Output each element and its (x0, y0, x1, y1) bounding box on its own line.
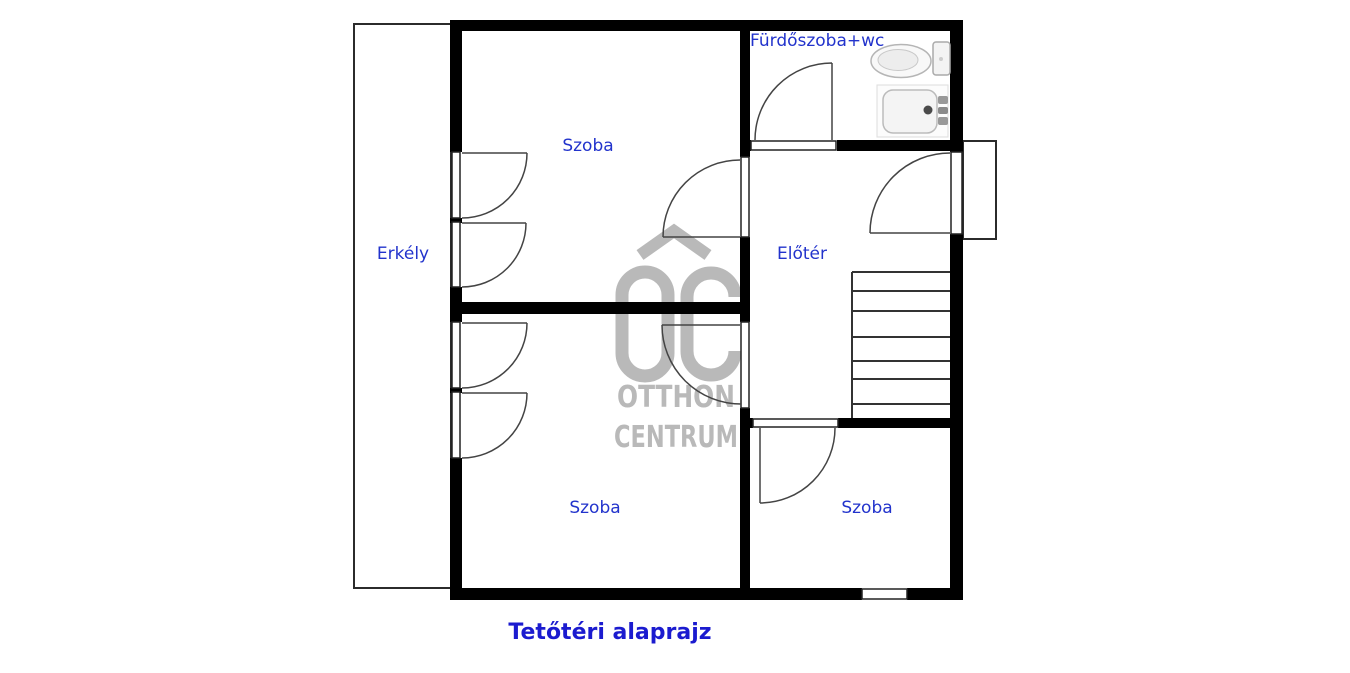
room-label-szoba-bottom-left: Szoba (535, 498, 655, 518)
watermark-line1: OTTHON (617, 380, 735, 415)
stairs (852, 272, 950, 418)
floorplan-drawing: OTTHON CENTRUM (0, 0, 1350, 673)
room-label-eloter: Előtér (742, 244, 862, 264)
bay-landing-outline (963, 141, 996, 239)
door-bathroom (751, 63, 836, 150)
floorplan-page: OTTHON CENTRUM (0, 0, 1350, 673)
door-bottom-right-szoba (753, 419, 838, 503)
balcony-door-bottom-1 (452, 322, 527, 388)
plan-title: Tetőtéri alaprajz (455, 620, 765, 645)
balcony-outline (354, 24, 451, 588)
door-eloter-exterior (870, 152, 962, 234)
watermark-line2: CENTRUM (614, 420, 738, 455)
otthon-centrum-watermark: OTTHON CENTRUM (614, 231, 738, 455)
room-label-furdoszoba-wc: Fürdőszoba+wc (750, 31, 884, 51)
window-bottom-right (862, 589, 907, 599)
room-label-szoba-bottom-right: Szoba (807, 498, 927, 518)
room-label-erkely: Erkély (343, 244, 463, 264)
shower-icon (877, 85, 948, 137)
balcony-door-top-2 (452, 222, 526, 287)
balcony-door-bottom-2 (452, 392, 527, 458)
balcony-door-top-1 (452, 152, 527, 218)
room-label-szoba-top: Szoba (528, 136, 648, 156)
